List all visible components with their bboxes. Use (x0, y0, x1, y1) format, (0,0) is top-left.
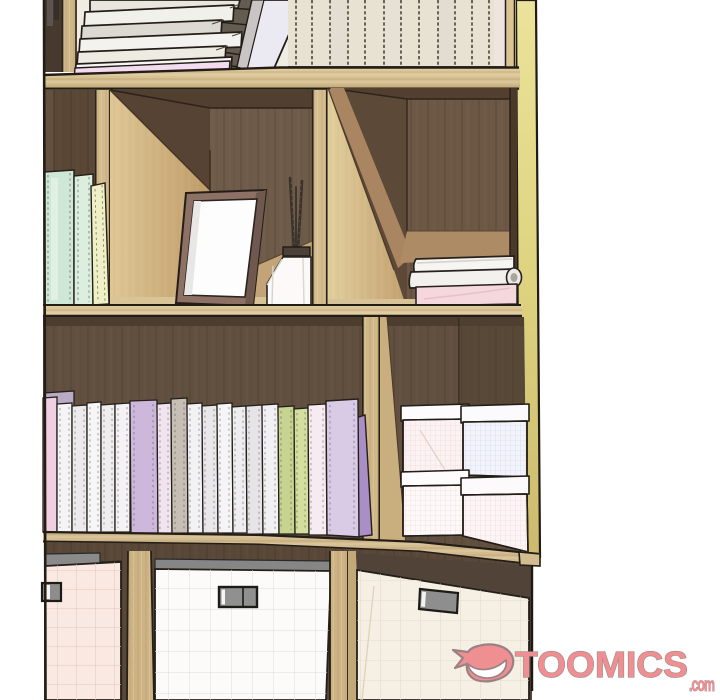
svg-text:TOOMICS: TOOMICS (515, 644, 688, 685)
svg-text:.com: .com (689, 675, 714, 696)
